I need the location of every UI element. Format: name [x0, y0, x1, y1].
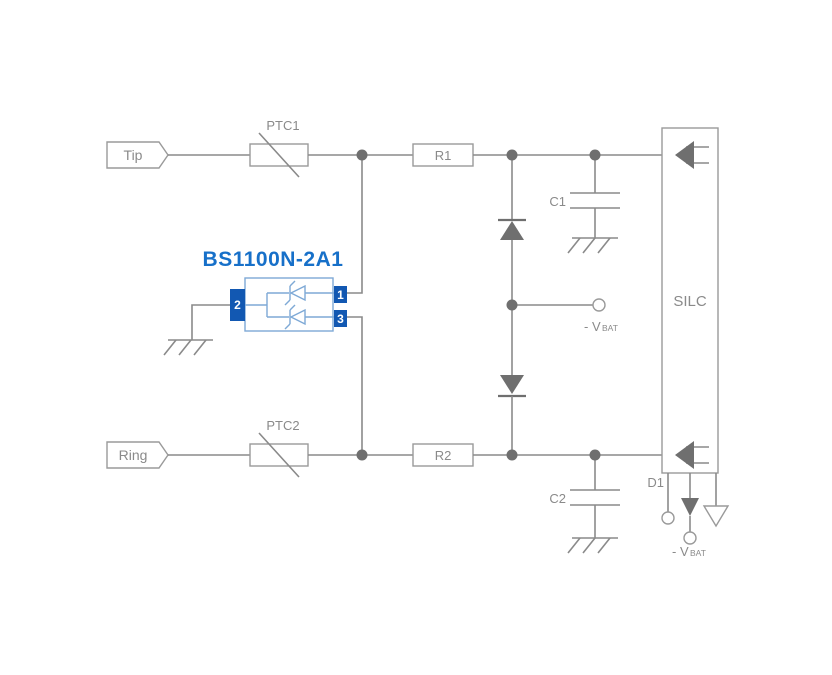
ring-label: Ring: [119, 447, 148, 463]
ring-terminal: Ring: [107, 442, 168, 468]
ground-tick: [194, 340, 206, 355]
pin2-ground-icon: [164, 340, 213, 355]
vbat-mid-label: - V: [584, 319, 601, 334]
ground-tick: [179, 340, 191, 355]
c1-branch: C1: [549, 155, 620, 253]
r1-label: R1: [435, 148, 452, 163]
c1-ground-tick: [598, 238, 610, 253]
tip-terminal: Tip: [107, 142, 168, 168]
c2-ground-tick: [583, 538, 595, 553]
vbat-mid-circle: [593, 299, 605, 311]
junction-dot: [507, 300, 518, 311]
vbat-bottom-label: - V: [672, 544, 689, 559]
wire-pin3-to-ring: [347, 317, 362, 455]
ptc1-label: PTC1: [266, 118, 299, 133]
junction-dot: [507, 150, 518, 161]
c2-label: C2: [549, 491, 566, 506]
circuit-schematic: Tip PTC1 R1 Ring PTC2 R2 - V: [0, 0, 832, 675]
d1-terminal: D1: [647, 473, 674, 524]
c2-branch: C2: [549, 455, 620, 553]
pin-3: 3: [334, 310, 347, 327]
vbat-mid-terminal: - V BAT: [512, 299, 618, 334]
c2-ground-icon: [568, 538, 618, 553]
vbat-bottom-circle: [684, 532, 696, 544]
junction-dot: [357, 150, 368, 161]
lower-clamp-diode: [498, 375, 526, 396]
vbat-mid-label-sub: BAT: [602, 323, 618, 333]
r2-symbol: R2: [413, 444, 473, 466]
upper-clamp-diode: [498, 220, 526, 240]
c1-ground-tick: [568, 238, 580, 253]
ptc1-symbol: PTC1: [250, 118, 308, 177]
upper-diode-triangle: [500, 221, 524, 240]
pin-3-number: 3: [337, 312, 344, 326]
wire-tip-to-pin1: [347, 155, 362, 293]
c1-ground-icon: [568, 238, 618, 253]
c2-ground-tick: [598, 538, 610, 553]
silc-block: SILC: [662, 128, 718, 473]
pin-1: 1: [334, 286, 347, 303]
junction-dot: [590, 150, 601, 161]
tip-label: Tip: [124, 147, 143, 163]
d1-label: D1: [647, 475, 664, 490]
c1-label: C1: [549, 194, 566, 209]
c1-ground-tick: [583, 238, 595, 253]
earth-ground-triangle: [704, 506, 728, 526]
r1-symbol: R1: [413, 144, 473, 166]
vbat-bottom-label-sub: BAT: [690, 548, 706, 558]
component-title: BS1100N-2A1: [203, 248, 344, 271]
pin-2: 2: [230, 289, 245, 321]
junction-dot: [357, 450, 368, 461]
ground-tick: [164, 340, 176, 355]
wire-pin2-to-ground: [192, 305, 230, 340]
protector-component: BS1100N-2A1 1 2: [164, 248, 347, 355]
d1-circle: [662, 512, 674, 524]
schematic-canvas: Tip PTC1 R1 Ring PTC2 R2 - V: [0, 0, 832, 675]
vbat-arrow-down: [681, 498, 699, 516]
pin2-ground: [164, 305, 230, 355]
ptc2-label: PTC2: [266, 418, 299, 433]
ptc2-symbol: PTC2: [250, 418, 308, 477]
vbat-bottom-terminal: - V BAT: [672, 473, 706, 559]
junction-dot: [590, 450, 601, 461]
c2-ground-tick: [568, 538, 580, 553]
pin-2-number: 2: [234, 298, 241, 312]
lower-diode-triangle: [500, 375, 524, 394]
silc-label: SILC: [673, 293, 707, 310]
pin-1-number: 1: [337, 288, 344, 302]
junction-dot: [507, 450, 518, 461]
earth-ground-terminal: [704, 473, 728, 526]
r2-label: R2: [435, 448, 452, 463]
